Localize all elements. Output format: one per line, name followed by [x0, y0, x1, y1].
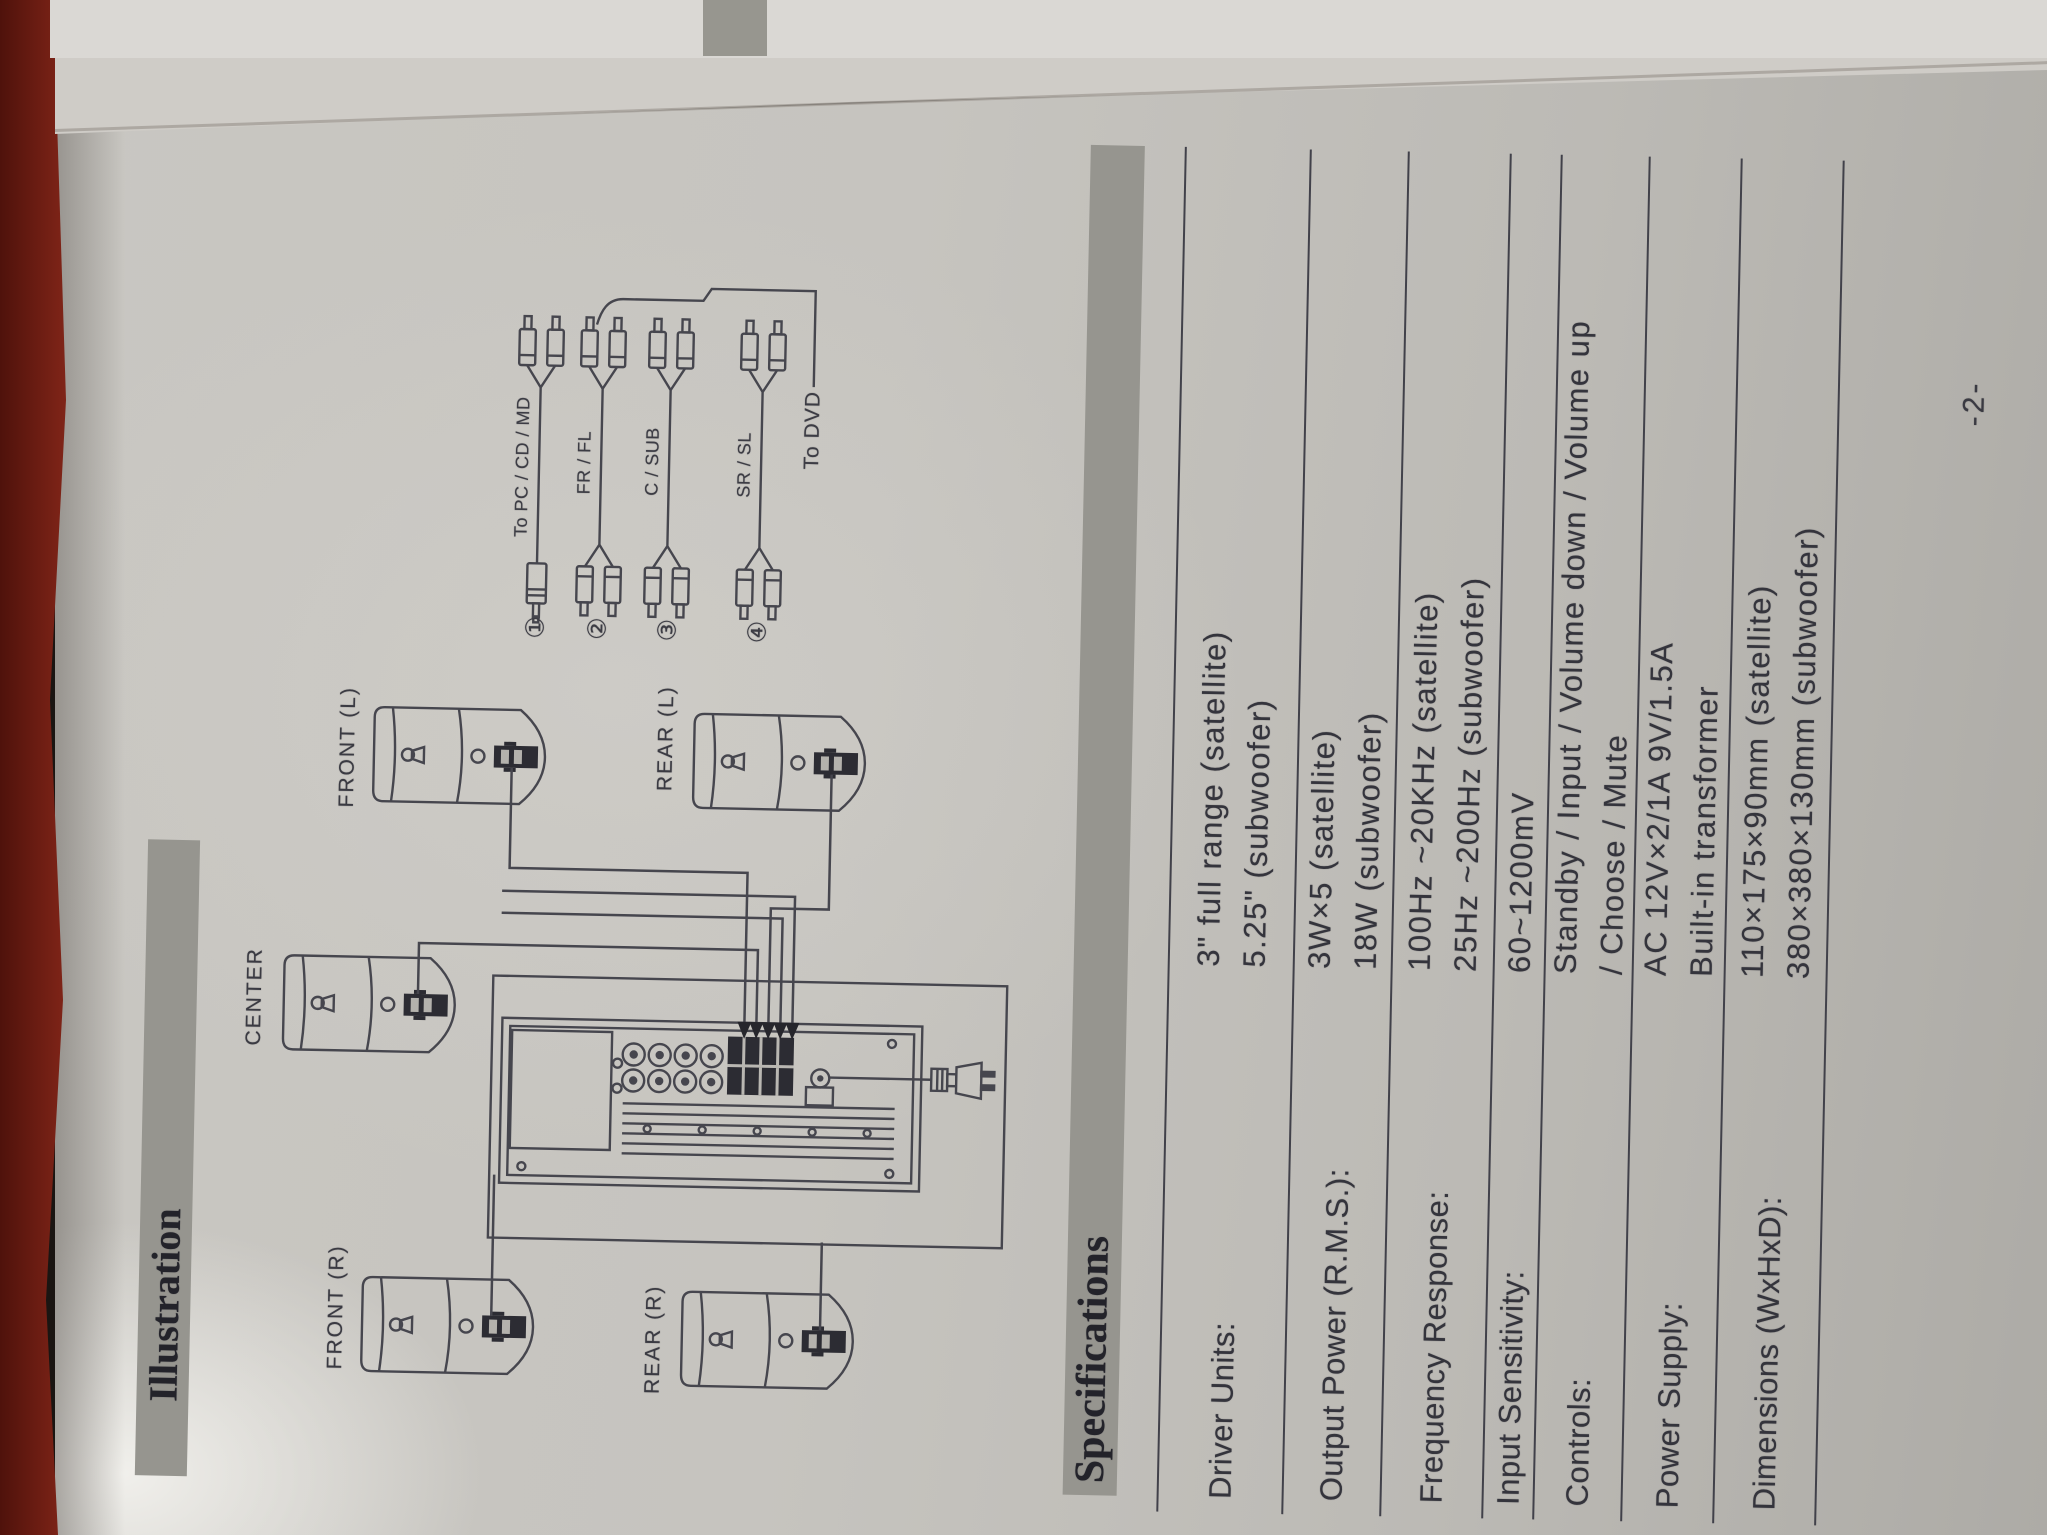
cable-label-3: C / SUB [641, 427, 663, 496]
cable-label-4: SR / SL [733, 432, 755, 498]
spec-label: Controls: [1559, 974, 1606, 1521]
spec-label: Frequency Response: [1413, 971, 1460, 1518]
speaker-rear-l-icon [693, 714, 866, 812]
cable-label-2: FR / FL [573, 431, 595, 495]
cable-number-2: ② [582, 614, 612, 643]
page-number: -2- [1956, 343, 1993, 464]
spec-values: 3W×5 (satellite) 18W (subwoofer) [1297, 150, 1406, 971]
spec-label: Power Supply: [1649, 976, 1696, 1523]
cable-label-1: To PC / CD / MD [511, 396, 535, 537]
power-plug-icon [829, 1060, 995, 1099]
photo-of-manual-page: Illustration Specifications [0, 0, 2047, 1535]
speaker-label-front-l: FRONT (L) [335, 686, 362, 808]
to-dvd-bracket [596, 287, 816, 388]
spec-label: Output Power (R.M.S.): [1313, 969, 1360, 1516]
to-dvd-label: To DVD [799, 391, 826, 529]
speaker-front-r-icon [361, 1277, 534, 1375]
speaker-rear-r-icon [681, 1292, 854, 1390]
speaker-center-icon [283, 955, 456, 1053]
spec-label: Input Sensitivity: [1490, 973, 1537, 1520]
speaker-label-rear-l: REAR (L) [653, 685, 679, 791]
cable-number-1: ① [520, 613, 550, 642]
spec-label: Driver Units: [1202, 967, 1249, 1514]
subwoofer-rear-panel [488, 976, 1007, 1249]
spec-values: 100Hz ~20KHz (satellite) 25Hz ~200Hz (su… [1397, 152, 1506, 973]
rotated-page-content: Illustration Specifications [0, 0, 2047, 1535]
speaker-label-rear-r: REAR (R) [641, 1284, 667, 1394]
spec-values: AC 12V×2/1A 9V/1.5A Built-in transformer [1633, 157, 1742, 978]
speaker-label-center: CENTER [242, 947, 268, 1046]
cable-number-4: ④ [742, 618, 772, 647]
specifications-table: Driver Units: 3" full range (satellite) … [1156, 147, 1844, 1526]
speaker-front-l-icon [373, 707, 546, 805]
spec-label: Dimensions (WxHxD): [1746, 978, 1793, 1525]
speaker-label-front-r: FRONT (R) [323, 1244, 350, 1369]
speaker-terminal-block [727, 1036, 794, 1095]
spec-values: 3" full range (satellite) 5.25" (subwoof… [1185, 147, 1294, 968]
spec-values: 110×175×90mm (satellite) 380×380×130mm (… [1730, 159, 1839, 980]
cable-number-3: ③ [652, 616, 682, 645]
